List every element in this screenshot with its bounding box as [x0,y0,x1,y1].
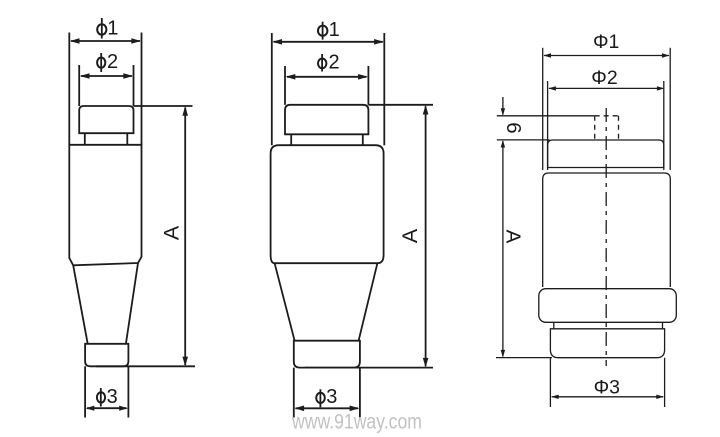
svg-text:Φ1: Φ1 [593,31,619,53]
svg-text:A: A [398,228,422,243]
svg-text:A: A [502,230,525,244]
svg-text:www.91way.com: www.91way.com [291,410,422,434]
svg-text:2: 2 [328,51,339,73]
svg-text:Φ3: Φ3 [594,376,620,398]
svg-text:Φ2: Φ2 [591,67,617,89]
svg-text:1: 1 [329,19,340,41]
svg-text:A: A [160,225,184,240]
svg-text:6: 6 [502,122,525,133]
svg-text:1: 1 [107,17,118,39]
svg-text:3: 3 [326,386,337,408]
svg-text:2: 2 [107,51,118,73]
svg-text:3: 3 [107,386,118,408]
